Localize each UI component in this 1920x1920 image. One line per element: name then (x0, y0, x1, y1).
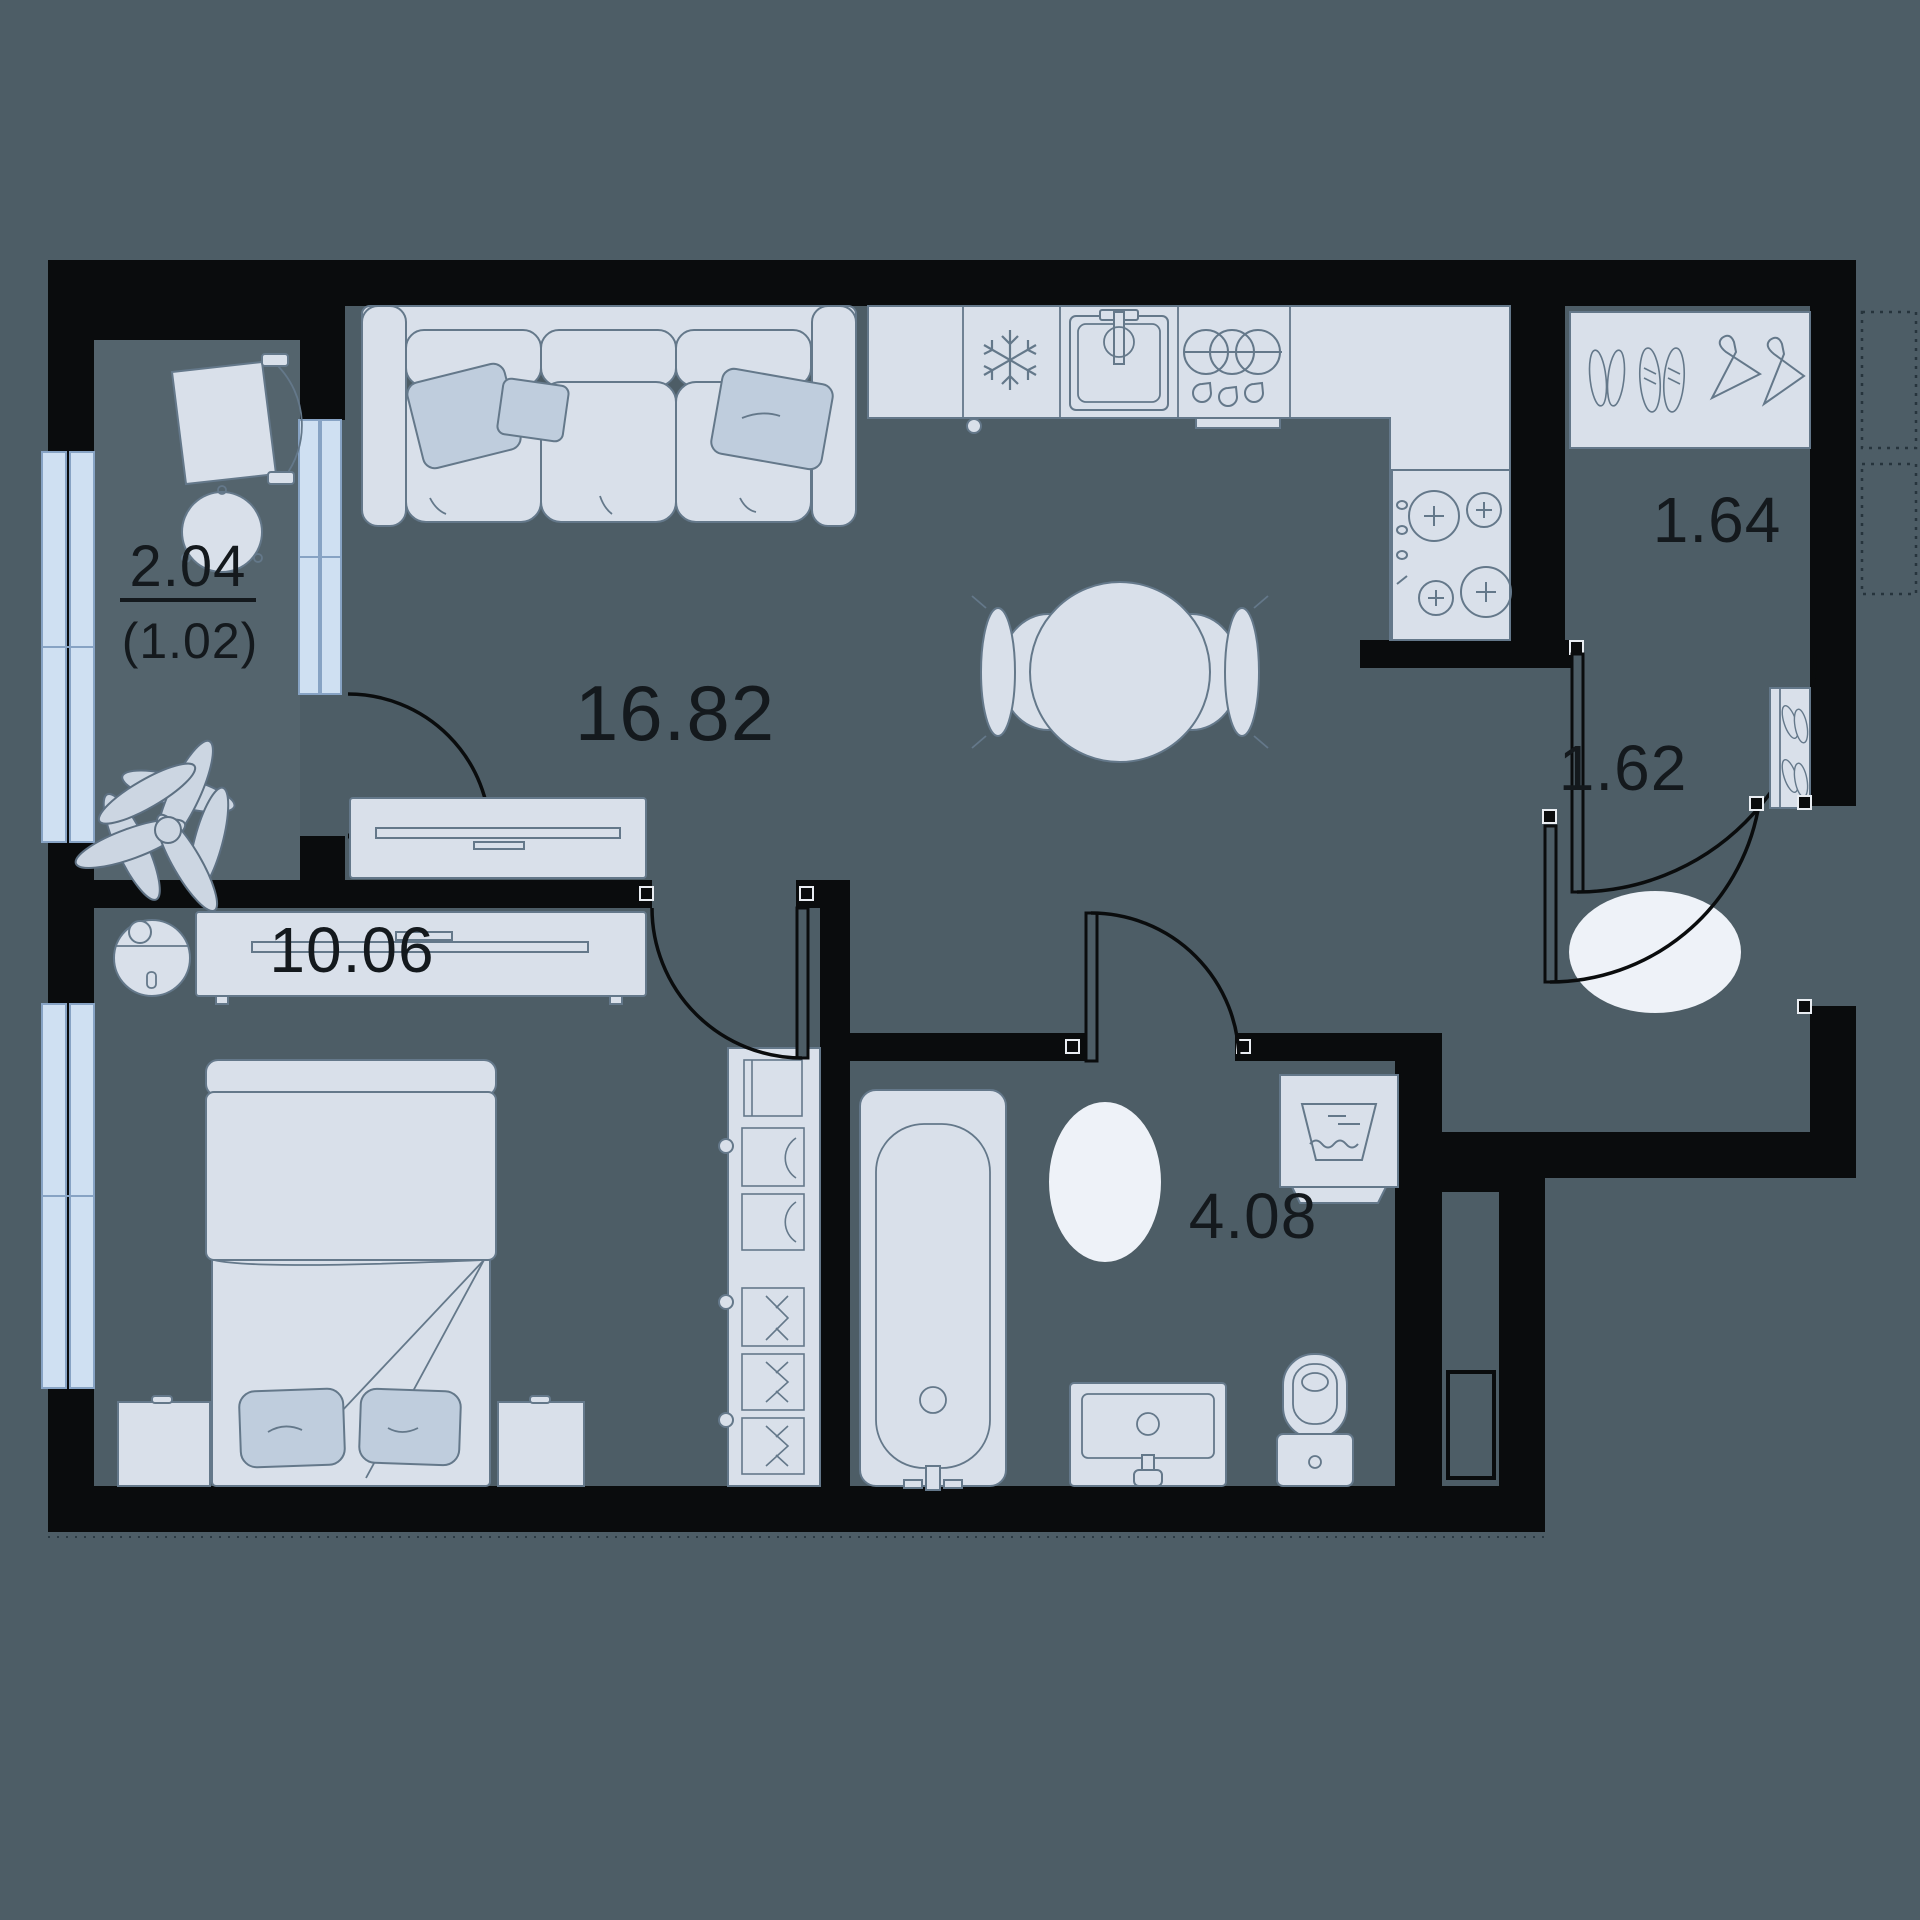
floor-plan-screenshot: 2.04 (1.02) 16.82 1.64 1.62 10.06 4.08 (0, 0, 1920, 1920)
balcony-glazing (299, 420, 341, 694)
bed (206, 1060, 496, 1486)
bathtub (860, 1090, 1006, 1490)
hallway-rug (1569, 891, 1741, 1013)
shoe-rack (1770, 688, 1810, 808)
nightstand-left (118, 1396, 210, 1486)
dining-table (1030, 582, 1210, 762)
closet-shelf (1570, 312, 1810, 448)
kitchen-stove (1392, 470, 1511, 640)
sofa (362, 306, 856, 526)
area-label-balcony: 2.04 (130, 534, 247, 599)
toilet (1277, 1354, 1353, 1486)
wardrobe-shelves (719, 1048, 820, 1486)
area-label-living: 16.82 (575, 669, 775, 757)
area-label-closet: 1.64 (1653, 484, 1782, 556)
nightstand-right (498, 1396, 584, 1486)
tv-stand-living (350, 798, 646, 878)
bathroom-rug (1049, 1102, 1161, 1262)
area-label-bathroom: 4.08 (1189, 1180, 1318, 1252)
area-label-balcony-reduced: (1.02) (122, 613, 259, 669)
robot-vacuum-icon (114, 920, 190, 996)
area-label-bedroom: 10.06 (269, 914, 434, 986)
sink-vanity (1070, 1383, 1226, 1486)
kitchen-sink (1070, 310, 1168, 410)
floor-plan-svg: 2.04 (1.02) 16.82 1.64 1.62 10.06 4.08 (0, 0, 1920, 1920)
area-label-hallway: 1.62 (1559, 732, 1688, 804)
